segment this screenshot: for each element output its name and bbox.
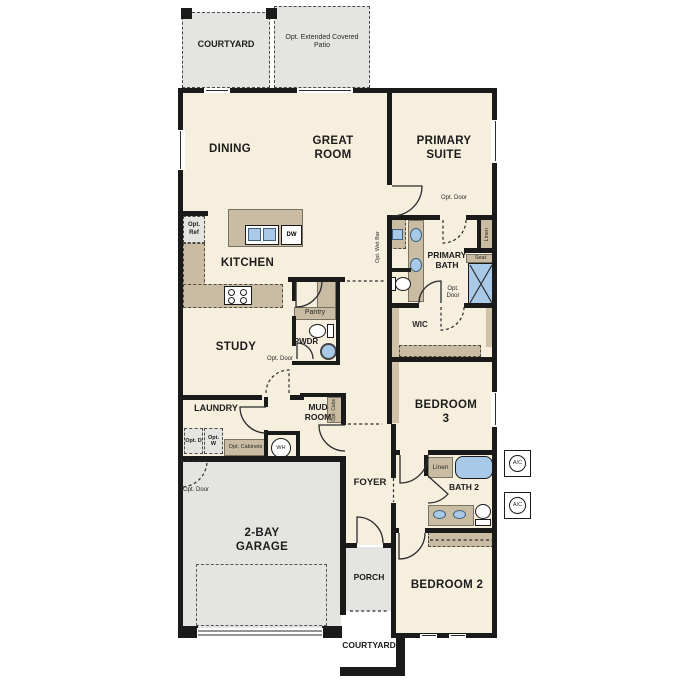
wall: [383, 543, 396, 548]
burner-icon: [228, 289, 235, 296]
wall: [340, 667, 405, 676]
wall: [391, 503, 396, 638]
bedroom3-label: BEDROOM 3: [410, 399, 482, 426]
wall: [336, 277, 340, 365]
opt-ref-label: Opt. Ref: [184, 222, 204, 236]
opt-cabinets-label: Opt. Cabinets: [229, 444, 263, 450]
wall: [464, 303, 497, 308]
opt-dryer: Opt. D: [184, 428, 203, 454]
wall: [387, 357, 497, 362]
opt-door-label-primary-suite: Opt. Door: [441, 195, 467, 202]
foyer-label: FOYER: [348, 477, 392, 488]
island-sink-basin-right: [263, 228, 276, 241]
garage-opt-storage-outline: [196, 564, 327, 626]
ac-unit-2-circle: A/C: [509, 497, 526, 514]
wall: [264, 397, 268, 407]
stove: [224, 286, 252, 305]
wall: [425, 528, 497, 533]
shower: [468, 263, 495, 306]
vanity-sink-top: [410, 228, 422, 242]
courtyard-top-label: COURTYARD: [182, 39, 270, 50]
opt-wet-bar-label: Opt. Wet Bar: [375, 220, 386, 275]
wall: [391, 528, 399, 533]
laundry-label: LAUNDRY: [187, 403, 245, 414]
bath2-toilet-bowl: [475, 504, 491, 519]
opt-washer: Opt. W: [204, 428, 223, 454]
burner-icon: [240, 289, 247, 296]
bath2-linen: Linen: [428, 457, 453, 478]
wall: [300, 393, 345, 397]
pantry-shelf-horizontal: Pantry: [294, 307, 336, 320]
wet-bar-sink: [392, 229, 403, 240]
wall: [178, 456, 345, 462]
linen-label: Linen: [484, 228, 490, 241]
opt-patio-label: Opt. Extended Covered Patio: [279, 34, 365, 51]
opt-cabinets: Opt. Cabinets: [224, 439, 267, 456]
courtyard-post-left: [181, 8, 192, 19]
burner-icon: [240, 297, 247, 304]
wall: [428, 450, 497, 455]
wall: [292, 277, 296, 301]
window: [491, 120, 500, 163]
wall: [343, 543, 357, 548]
linen-label: Linen: [433, 464, 449, 472]
bath2-toilet-tank: [475, 519, 491, 526]
bath2-sink-left: [433, 510, 446, 519]
vanity-sink-bottom: [410, 258, 422, 272]
seat-label: Seat: [475, 255, 486, 261]
wall: [264, 431, 300, 435]
garage-door-opening: [197, 628, 323, 638]
wall: [292, 361, 340, 365]
primary-bath-label: PRIMARY BATH: [423, 250, 471, 270]
ac-unit-1-circle: A/C: [509, 455, 526, 472]
study-label: STUDY: [205, 341, 267, 355]
foyer-floor-area: [345, 457, 393, 545]
wall: [340, 456, 346, 615]
wall: [178, 458, 183, 632]
window: [420, 634, 437, 638]
wall: [322, 626, 342, 638]
wic-shelf: [399, 345, 481, 357]
courtyard-post-right: [266, 8, 277, 19]
wall: [387, 268, 411, 272]
wall: [387, 215, 440, 220]
wall: [391, 450, 400, 455]
window: [297, 88, 353, 93]
opt-refrigerator: Opt. Ref: [183, 216, 205, 243]
primary-suite-label: PRIMARY SUITE: [413, 135, 475, 162]
ac-label: A/C: [513, 502, 522, 508]
wall: [387, 215, 392, 424]
water-heater: WH: [271, 438, 291, 458]
wall: [424, 455, 428, 476]
pwdr-label: PWDR: [291, 337, 321, 346]
wall: [183, 211, 208, 216]
mud-room-label: MUD ROOM: [295, 402, 341, 422]
wall: [341, 393, 346, 425]
pwdr-toilet-tank: [327, 324, 334, 338]
bathtub: [455, 456, 493, 479]
ac-label: A/C: [513, 460, 522, 466]
ac-unit-1: A/C: [504, 450, 531, 477]
window: [176, 130, 185, 170]
dishwasher: DW: [281, 225, 302, 245]
opt-washer-label: Opt. W: [205, 435, 222, 448]
island-sink-basin-left: [248, 228, 261, 241]
wic-wall-shelf-left: [391, 307, 399, 423]
ac-unit-2: A/C: [504, 492, 531, 519]
courtyard-bottom-label: COURTYARD: [337, 640, 401, 650]
wic-label: WIC: [406, 320, 434, 329]
opt-door-label-wic: Opt. Door: [441, 286, 465, 300]
opt-dryer-label: Opt. D: [185, 438, 202, 444]
opt-door-label-study: Opt. Door: [267, 356, 293, 363]
courtyard-top-area: [182, 12, 270, 88]
bath2-label: BATH 2: [447, 482, 481, 492]
pantry-shelf-vertical: [317, 281, 336, 308]
great-room-label: GREAT ROOM: [303, 135, 363, 162]
garage-label: 2-BAY GARAGE: [222, 527, 302, 554]
bedroom2-closet: [428, 532, 494, 547]
window: [449, 634, 466, 638]
wall: [178, 395, 262, 400]
burner-icon: [228, 297, 235, 304]
wall: [466, 215, 497, 220]
pwdr-sink: [320, 343, 337, 360]
water-heater-label: WH: [276, 445, 285, 451]
wall: [393, 633, 497, 638]
bedroom2-label: BEDROOM 2: [410, 579, 484, 593]
wall: [178, 626, 198, 638]
opt-door-label-garage: Opt. Door: [183, 487, 209, 494]
pantry-label: Pantry: [305, 309, 325, 317]
pwdr-toilet-bowl: [309, 324, 326, 338]
kitchen-label: KITCHEN: [215, 257, 280, 271]
primary-toilet-bowl: [395, 277, 411, 291]
window: [204, 88, 230, 93]
wall: [387, 88, 392, 185]
wall: [492, 88, 497, 638]
dishwasher-label: DW: [287, 232, 297, 238]
wall: [296, 431, 300, 458]
floor-plan: DW Opt. Ref Pantry Linen Seat Opt. D Opt…: [0, 0, 687, 687]
wall: [477, 215, 481, 250]
dining-label: DINING: [200, 143, 260, 157]
window: [491, 392, 500, 427]
bath2-sink-right: [453, 510, 466, 519]
porch-label: PORCH: [351, 572, 387, 582]
wall: [387, 303, 419, 308]
